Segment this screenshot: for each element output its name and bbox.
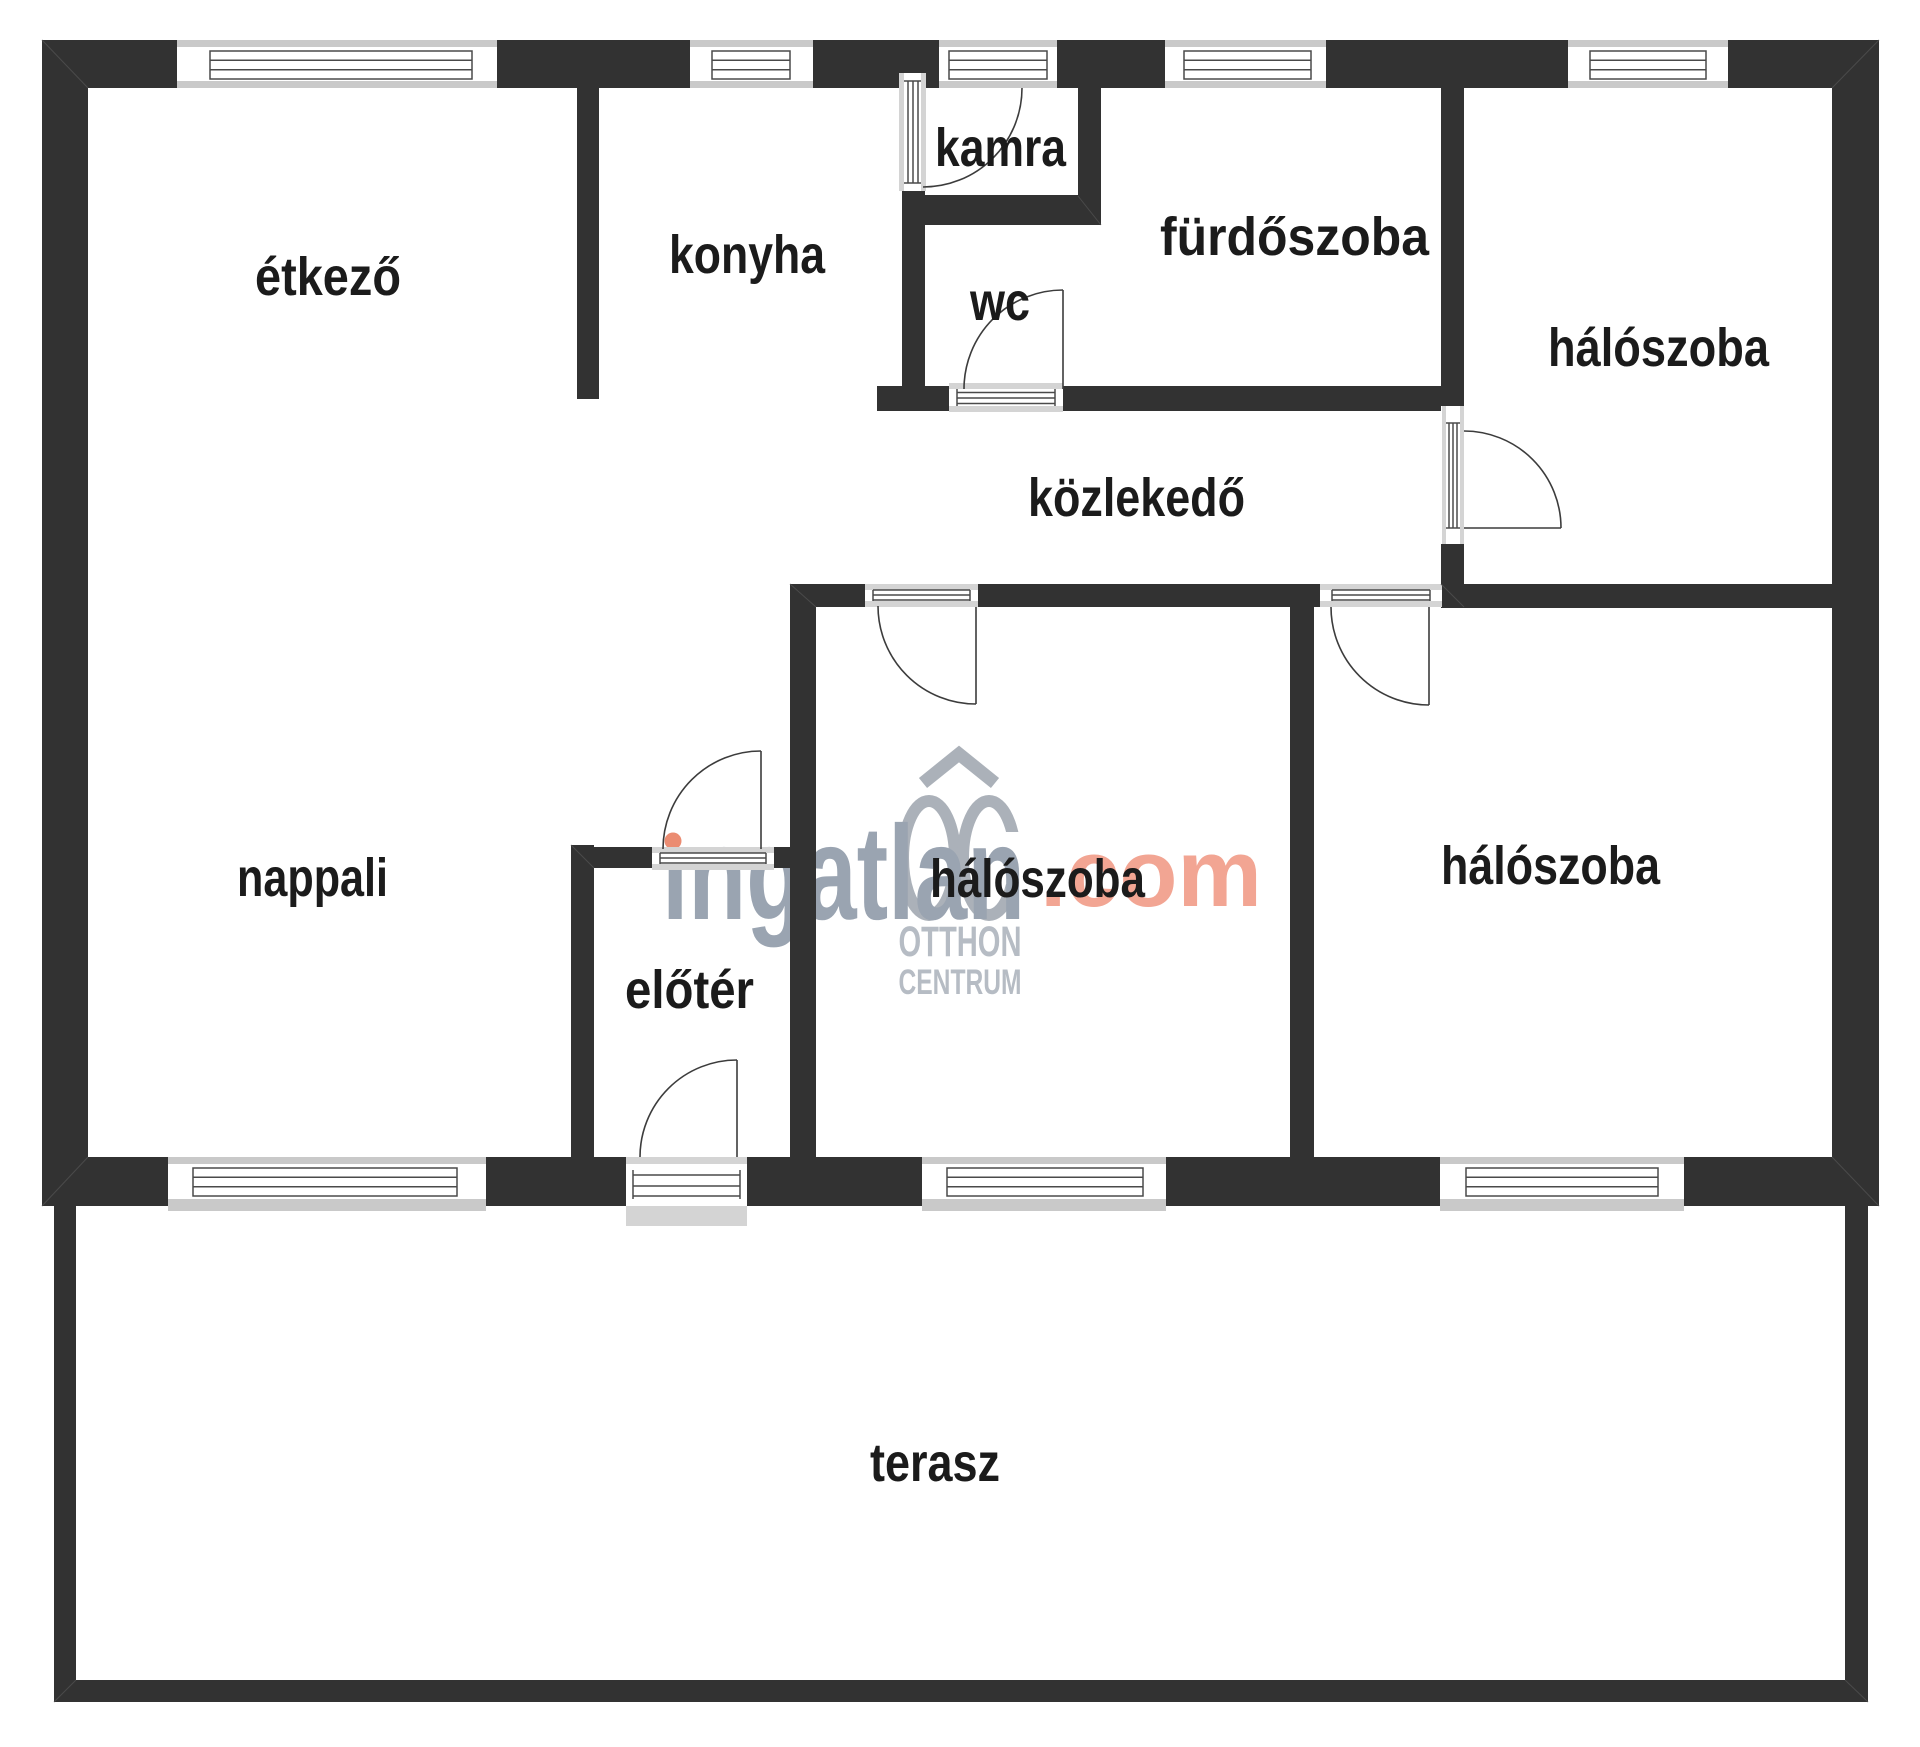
svg-text:konyha: konyha	[669, 225, 826, 285]
svg-text:hálószoba: hálószoba	[930, 849, 1146, 909]
svg-text:előtér: előtér	[625, 960, 754, 1020]
svg-text:fürdőszoba: fürdőszoba	[1160, 207, 1430, 267]
svg-text:wc: wc	[969, 272, 1030, 332]
svg-text:kamra: kamra	[935, 118, 1067, 178]
svg-text:hálószoba: hálószoba	[1441, 836, 1661, 896]
svg-text:étkező: étkező	[255, 247, 401, 307]
svg-text:CENTRUM: CENTRUM	[899, 963, 1022, 1002]
svg-text:hálószoba: hálószoba	[1548, 318, 1770, 378]
svg-text:OTTHON: OTTHON	[899, 918, 1022, 966]
svg-text:terasz: terasz	[870, 1433, 1000, 1493]
svg-text:nappali: nappali	[237, 848, 388, 908]
svg-text:közlekedő: közlekedő	[1028, 468, 1245, 528]
